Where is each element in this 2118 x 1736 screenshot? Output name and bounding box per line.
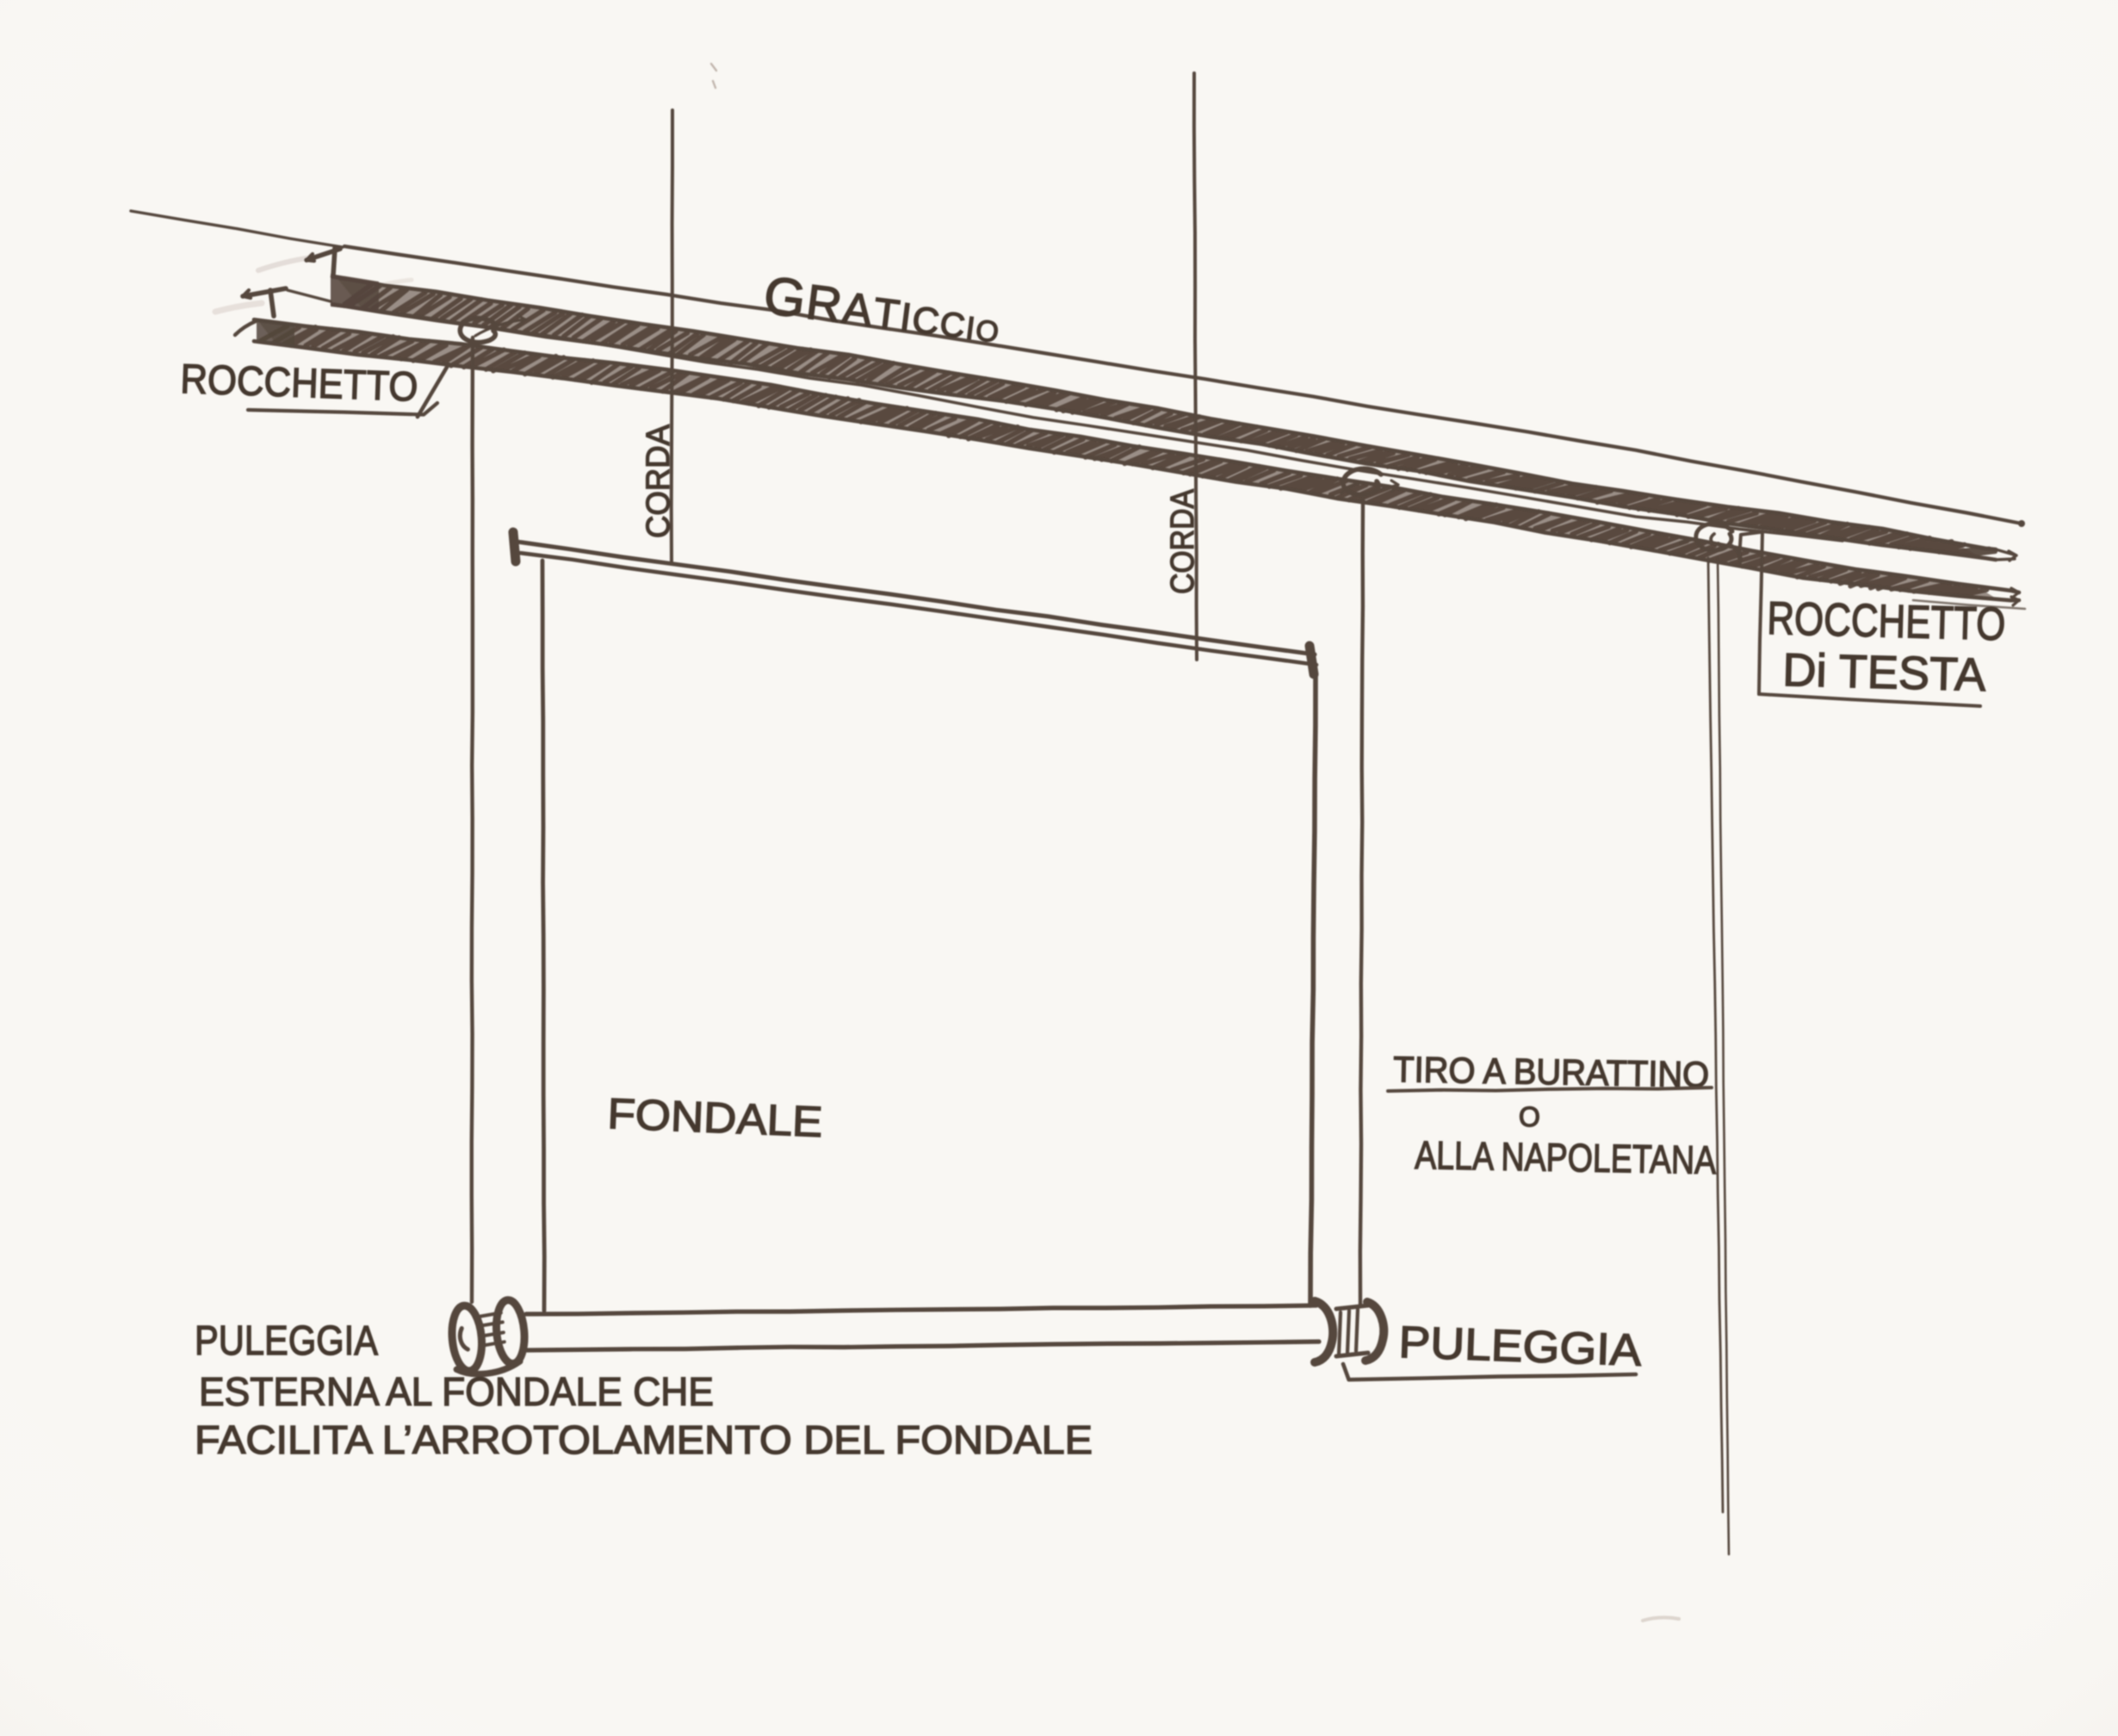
svg-text:ROCCHETTO: ROCCHETTO [180, 356, 419, 411]
svg-text:ROCCHETTO: ROCCHETTO [1767, 592, 2006, 650]
svg-text:FACILITA L’ARROTOLAMENTO DEL F: FACILITA L’ARROTOLAMENTO DEL FONDALE [195, 1417, 1093, 1462]
svg-text:ALLA NAPOLETANA: ALLA NAPOLETANA [1415, 1132, 1717, 1182]
svg-text:PULEGGIA: PULEGGIA [195, 1318, 378, 1364]
svg-text:CORDA: CORDA [1165, 488, 1201, 594]
svg-text:PULEGGIA: PULEGGIA [1398, 1317, 1643, 1376]
svg-text:O: O [1519, 1101, 1540, 1132]
svg-text:FONDALE: FONDALE [607, 1089, 824, 1146]
svg-text:ESTERNA AL FONDALE CHE: ESTERNA AL FONDALE CHE [199, 1369, 714, 1414]
svg-text:CORDA: CORDA [641, 424, 677, 538]
svg-text:Di TESTA: Di TESTA [1782, 644, 1986, 701]
